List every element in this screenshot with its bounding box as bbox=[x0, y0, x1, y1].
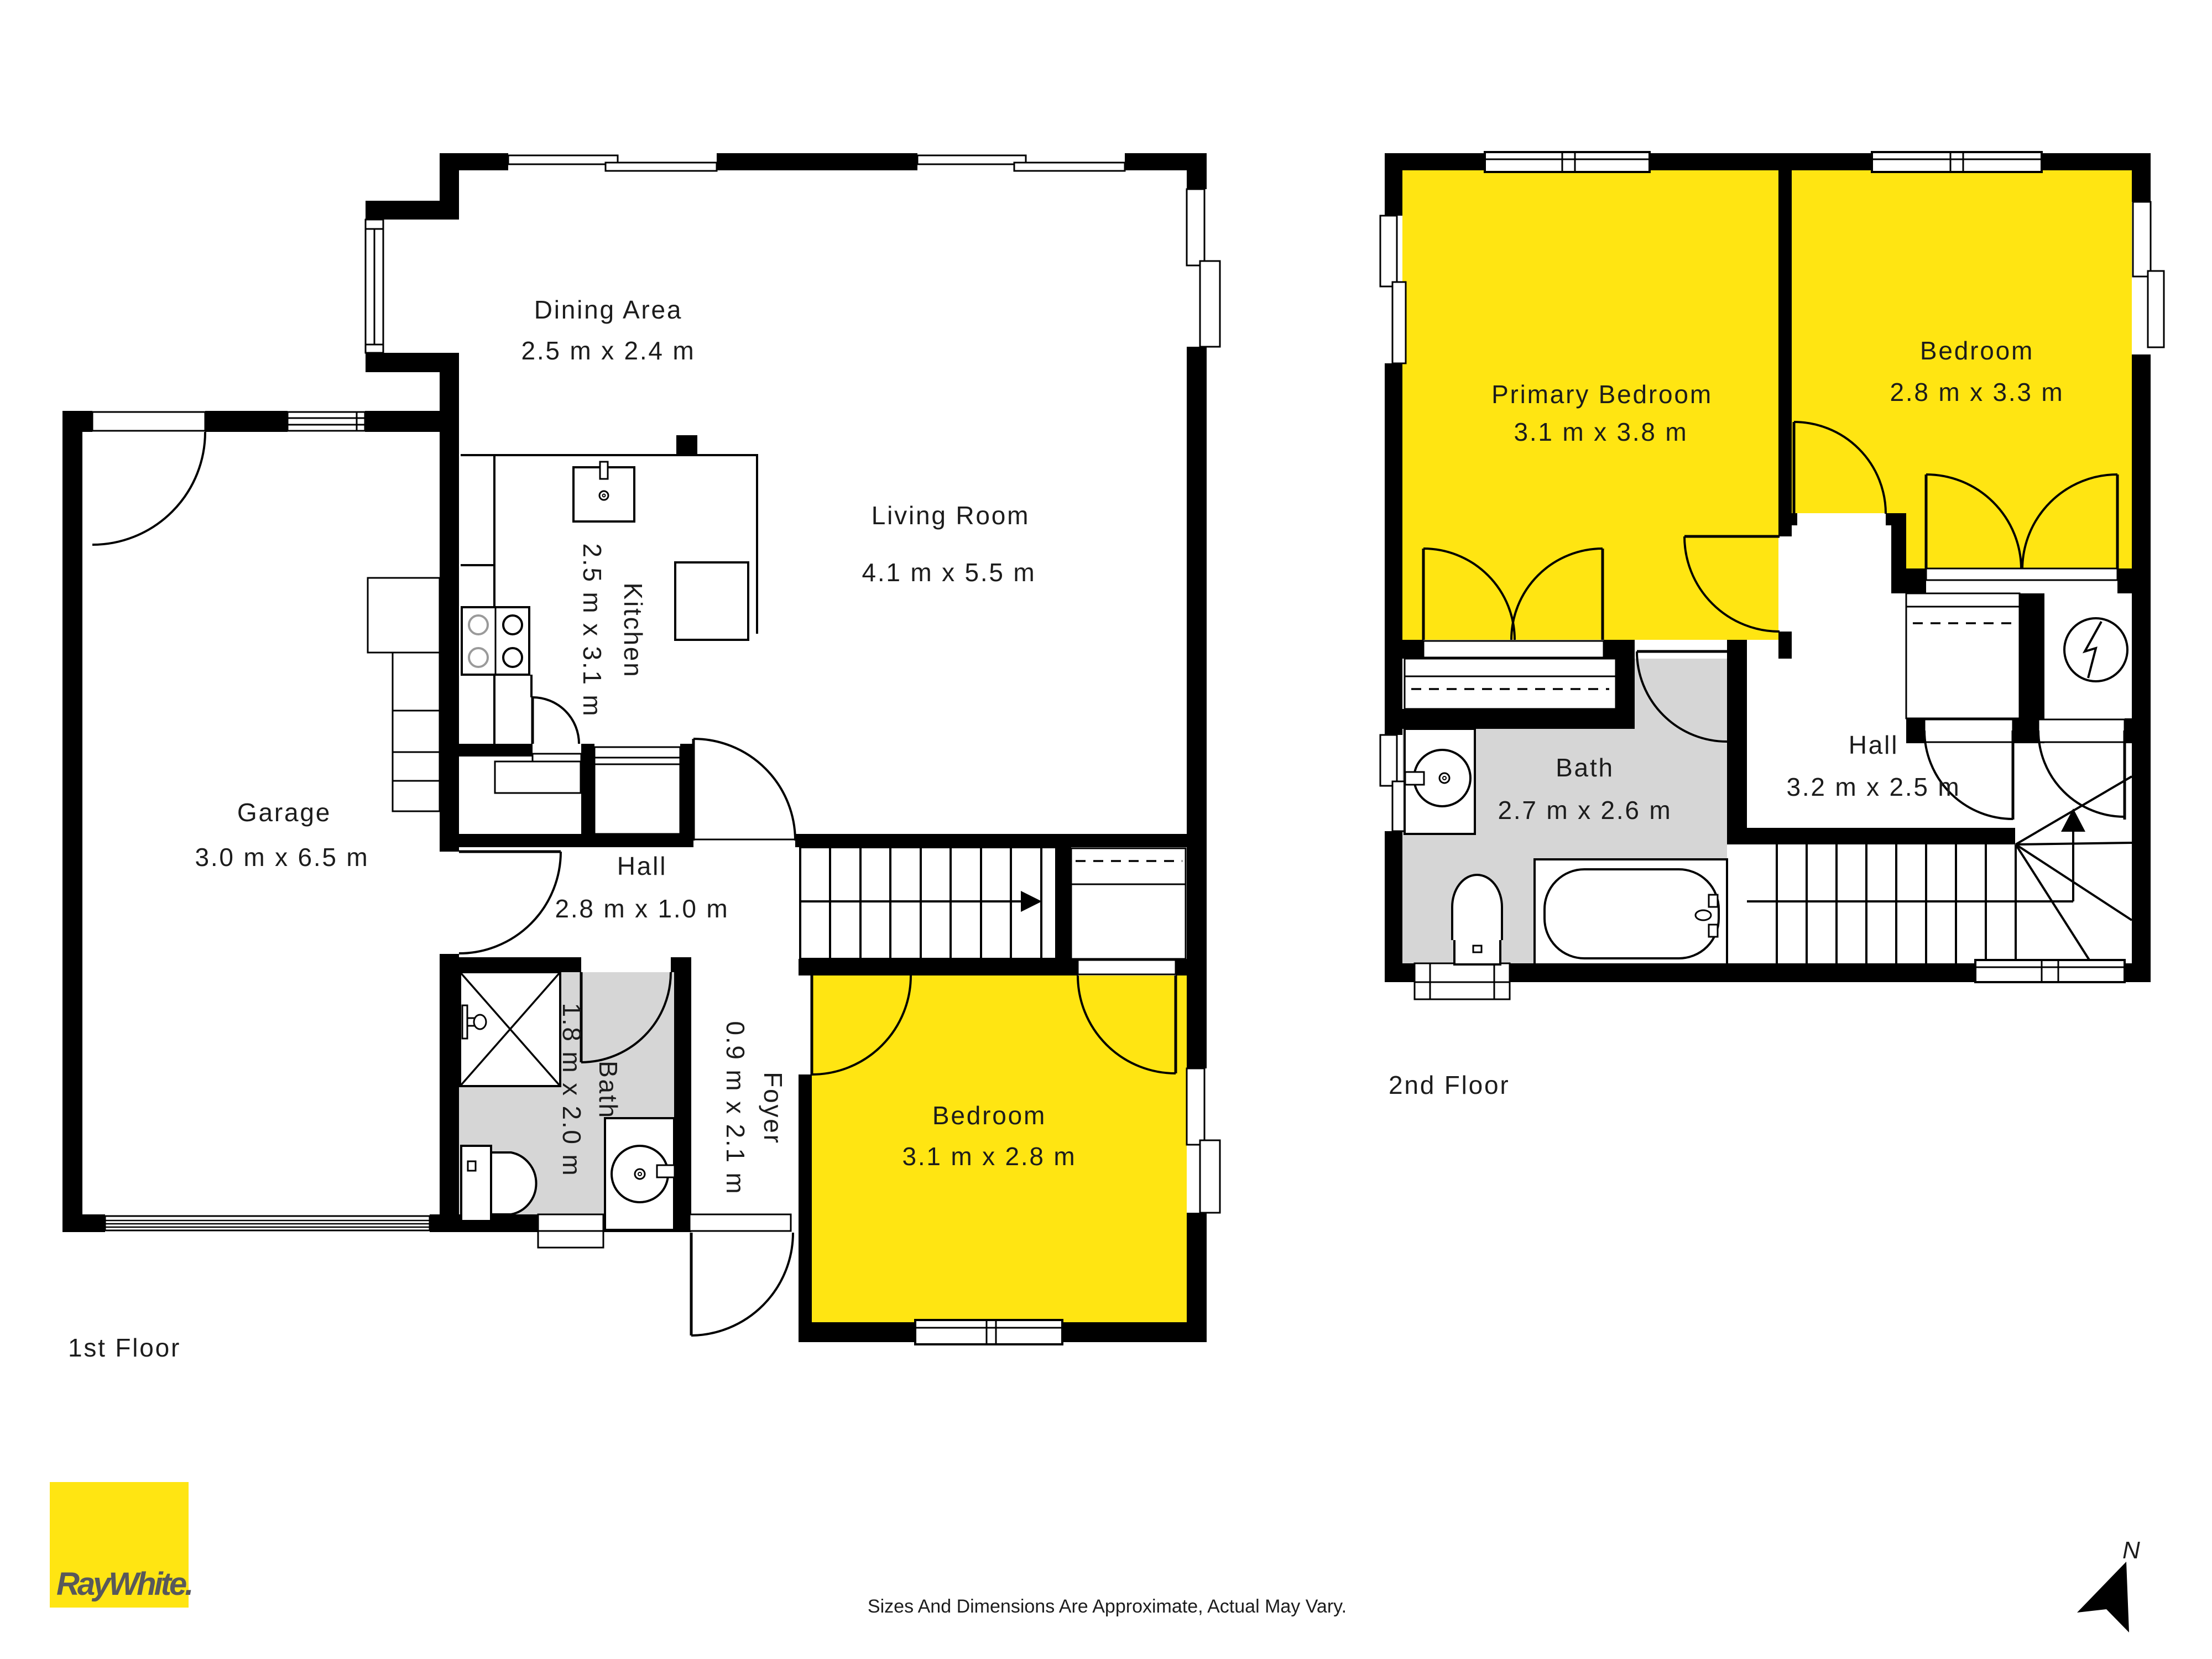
svg-text:Dining Area: Dining Area bbox=[534, 295, 683, 324]
svg-text:1st Floor: 1st Floor bbox=[68, 1333, 181, 1362]
svg-text:2nd Floor: 2nd Floor bbox=[1389, 1071, 1510, 1099]
svg-text:Bedroom: Bedroom bbox=[932, 1101, 1046, 1130]
svg-text:3.1 m x 2.8 m: 3.1 m x 2.8 m bbox=[902, 1142, 1076, 1171]
svg-text:Hall: Hall bbox=[617, 852, 667, 880]
svg-text:2.8 m x 3.3 m: 2.8 m x 3.3 m bbox=[1890, 378, 2064, 406]
svg-text:Bath: Bath bbox=[1556, 753, 1614, 782]
svg-text:3.2 m x 2.5 m: 3.2 m x 2.5 m bbox=[1786, 773, 1960, 801]
svg-text:Hall: Hall bbox=[1849, 731, 1898, 759]
svg-text:Bath: Bath bbox=[594, 1061, 623, 1119]
svg-text:2.5 m x 3.1 m: 2.5 m x 3.1 m bbox=[578, 543, 607, 717]
svg-text:N: N bbox=[2122, 1537, 2140, 1564]
svg-text:Living Room: Living Room bbox=[872, 501, 1030, 530]
svg-text:2.7 m x 2.6 m: 2.7 m x 2.6 m bbox=[1498, 796, 1672, 825]
svg-text:0.9 m x 2.1 m: 0.9 m x 2.1 m bbox=[721, 1021, 750, 1195]
svg-text:4.1 m x 5.5 m: 4.1 m x 5.5 m bbox=[862, 558, 1036, 587]
svg-text:2.5 m x 2.4 m: 2.5 m x 2.4 m bbox=[521, 336, 695, 365]
svg-text:Foyer: Foyer bbox=[759, 1072, 787, 1145]
svg-text:3.1 m x 3.8 m: 3.1 m x 3.8 m bbox=[1514, 418, 1688, 446]
svg-text:RayWhite.: RayWhite. bbox=[56, 1566, 191, 1602]
svg-text:Kitchen: Kitchen bbox=[619, 582, 648, 678]
svg-text:Sizes And Dimensions Are Appro: Sizes And Dimensions Are Approximate, Ac… bbox=[868, 1596, 1347, 1617]
svg-text:Garage: Garage bbox=[237, 798, 331, 827]
svg-text:Primary Bedroom: Primary Bedroom bbox=[1491, 380, 1713, 409]
svg-text:Bedroom: Bedroom bbox=[1920, 336, 2034, 365]
svg-text:1.8 m x 2.0 m: 1.8 m x 2.0 m bbox=[557, 1003, 586, 1177]
svg-text:3.0 m x 6.5 m: 3.0 m x 6.5 m bbox=[195, 843, 369, 872]
svg-text:2.8 m x 1.0 m: 2.8 m x 1.0 m bbox=[555, 894, 729, 923]
